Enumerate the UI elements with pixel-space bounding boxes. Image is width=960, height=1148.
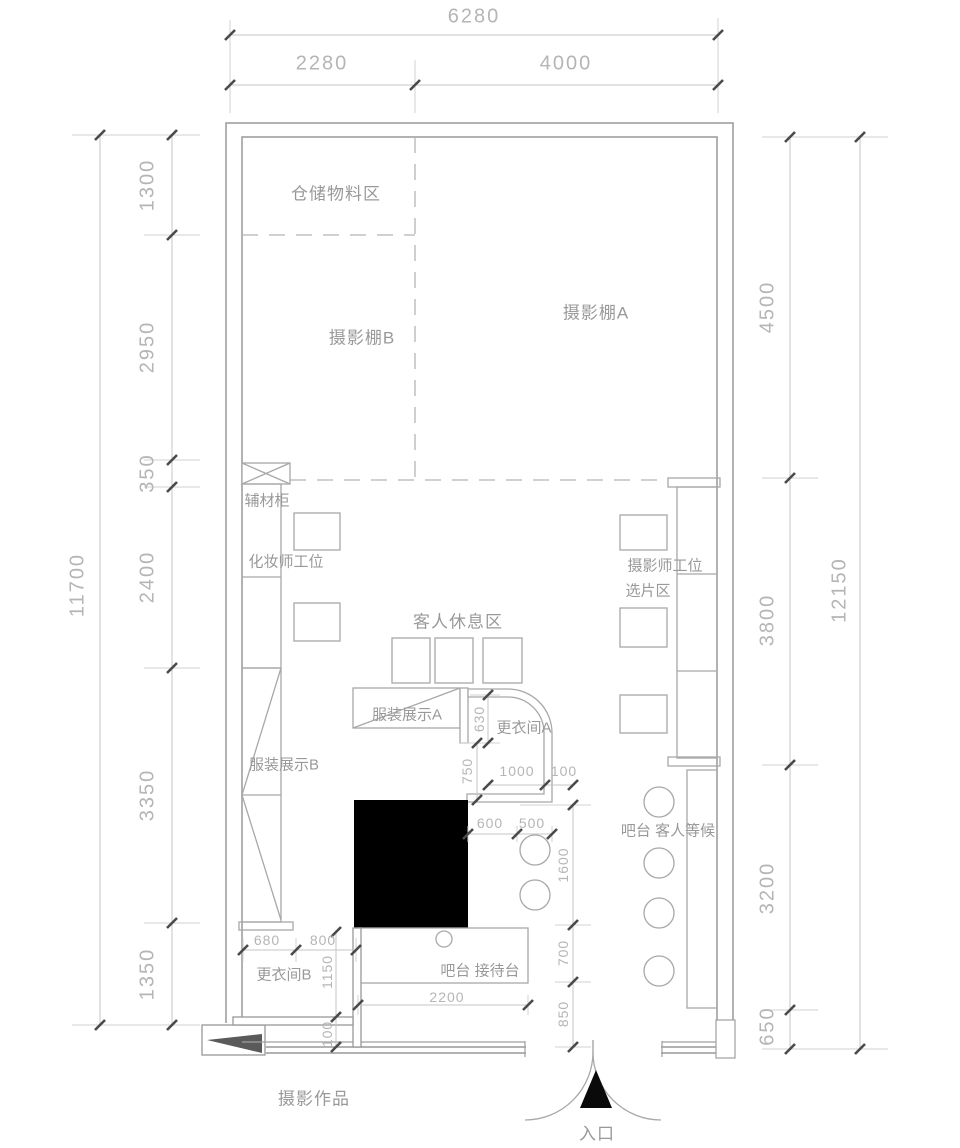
label-bar-reception: 吧台 接待台 — [440, 960, 519, 981]
label-guest-rest-area: 客人休息区 — [413, 608, 503, 633]
dim-aisle-600: 600 — [477, 815, 503, 831]
label-photographer-station: 摄影师工位 — [627, 555, 702, 576]
bottom-left-step — [200, 1023, 266, 1056]
label-storage-area: 仓储物料区 — [291, 180, 381, 205]
dim-wall-a: 100 — [551, 763, 577, 779]
guest-stools — [520, 835, 550, 910]
dim-top-right: 4000 — [540, 53, 593, 76]
dimension-lines — [100, 35, 860, 1049]
dim-right-seg-3200: 3200 — [757, 862, 780, 915]
label-photo-works: 摄影作品 — [278, 1085, 350, 1110]
label-studio-a: 摄影棚A — [563, 299, 629, 324]
dim-right-seg-3800: 3800 — [757, 594, 780, 647]
dim-top-total: 6280 — [448, 6, 501, 29]
dim-left-seg-1350: 1350 — [137, 948, 160, 1001]
label-changing-room-b: 更衣间B — [256, 964, 311, 985]
black-platform — [354, 800, 468, 930]
dim-reception-2200: 2200 — [429, 989, 464, 1005]
photographer-chairs — [620, 515, 667, 733]
dim-stool-500: 500 — [519, 815, 545, 831]
label-selection-area: 选片区 — [625, 580, 670, 601]
dim-door-a: 750 — [459, 758, 475, 784]
floor-plan: 仓储物料区 摄影棚B 摄影棚A 辅材柜 化妆师工位 客人休息区 服装展示A 更衣… — [0, 0, 960, 1148]
label-clothing-display-b: 服装展示B — [249, 754, 319, 775]
aux-cabinet — [242, 463, 290, 484]
label-bar-waiting: 吧台 客人等候 — [621, 820, 715, 841]
label-studio-b: 摄影棚B — [329, 324, 395, 349]
dim-gap-700: 700 — [555, 940, 571, 966]
label-clothing-display-a: 服装展示A — [372, 704, 442, 725]
dim-left-seg-2400: 2400 — [137, 551, 160, 604]
dim-right-total: 12150 — [829, 557, 852, 623]
photographer-counter — [668, 478, 720, 766]
label-changing-room-a: 更衣间A — [496, 717, 551, 738]
dim-wall-b-100: 100 — [319, 1021, 335, 1047]
dim-changing-a-height: 630 — [471, 706, 487, 732]
dim-top-left: 2280 — [296, 53, 349, 76]
guest-rest-chairs — [392, 638, 522, 683]
dim-right-seg-4500: 4500 — [757, 281, 780, 334]
dimension-ticks — [95, 30, 865, 1054]
label-makeup-station: 化妆师工位 — [248, 551, 323, 572]
label-aux-cabinet: 辅材柜 — [244, 490, 289, 511]
dim-left-seg-2950: 2950 — [137, 321, 160, 374]
dim-right-seg-650: 650 — [757, 1006, 780, 1045]
dim-changing-b-680: 680 — [254, 932, 280, 948]
dim-changing-a-width: 1000 — [499, 763, 534, 779]
dim-left-seg-1300: 1300 — [137, 159, 160, 212]
makeup-chairs — [294, 513, 340, 641]
dim-left-seg-350: 350 — [137, 453, 160, 492]
makeup-counter — [242, 484, 281, 668]
dim-left-seg-3350: 3350 — [137, 769, 160, 822]
dim-left-total: 11700 — [67, 553, 90, 617]
bar-stools — [644, 787, 674, 986]
label-entrance: 入口 — [579, 1120, 615, 1145]
clothing-display-b — [239, 668, 293, 930]
bar-counter — [687, 770, 717, 1008]
entrance-arrow — [580, 1070, 612, 1108]
dim-changing-b-800: 800 — [310, 932, 336, 948]
dim-bar-1600: 1600 — [555, 847, 571, 882]
dim-entry-850: 850 — [555, 1001, 571, 1027]
dim-changing-b-1150: 1150 — [319, 955, 335, 989]
